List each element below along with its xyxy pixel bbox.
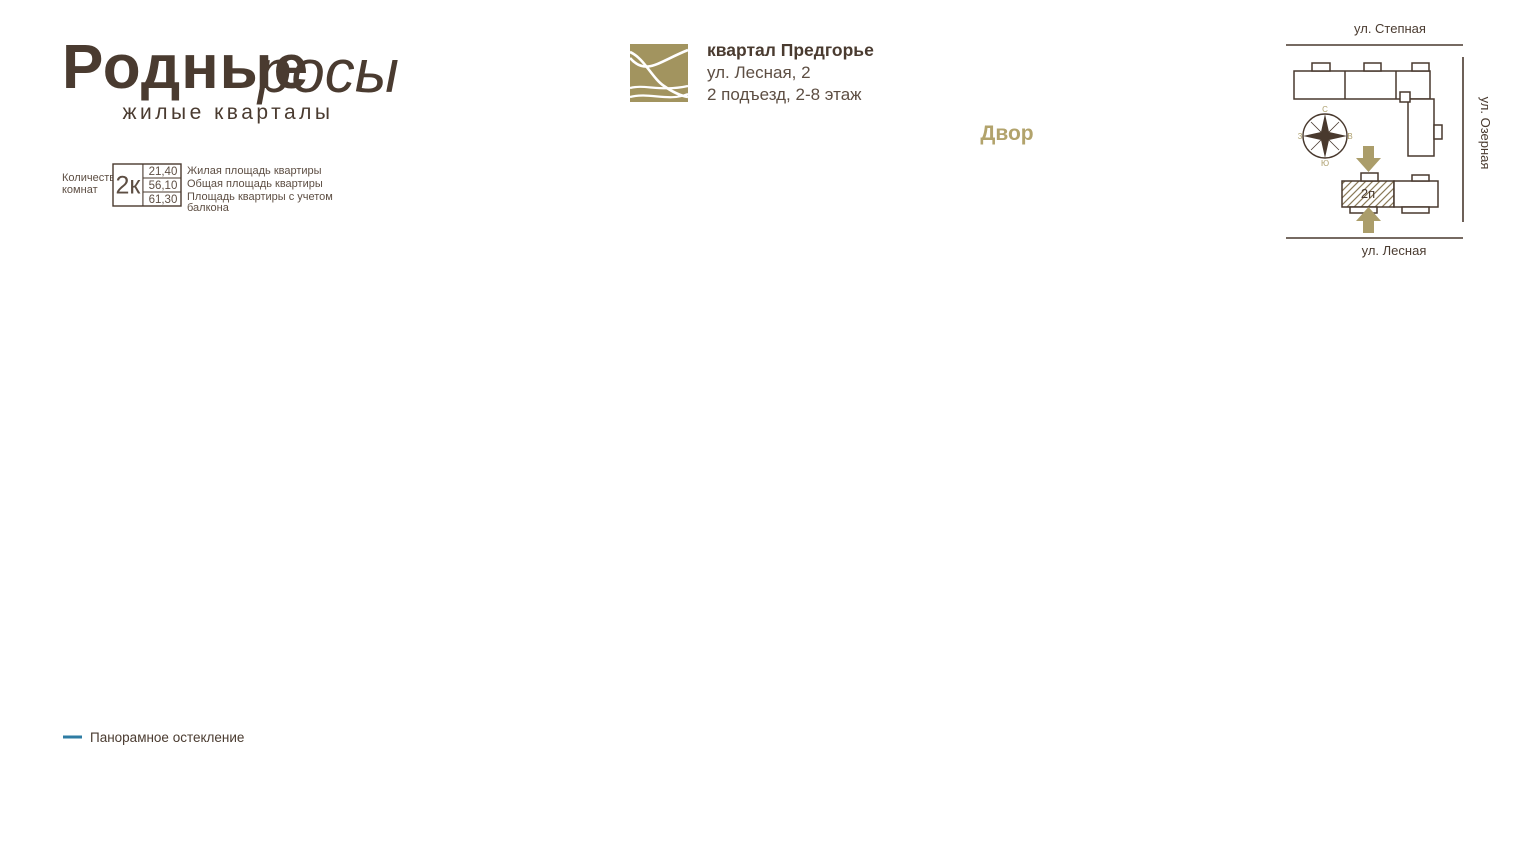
svg-text:ул. Лесная, 2: ул. Лесная, 2 bbox=[707, 63, 811, 82]
svg-text:2 подъезд, 2-8 этаж: 2 подъезд, 2-8 этаж bbox=[707, 85, 862, 104]
svg-text:Количество: Количество bbox=[62, 172, 121, 184]
svg-text:61,30: 61,30 bbox=[149, 194, 178, 206]
svg-text:комнат: комнат bbox=[62, 184, 98, 196]
svg-text:З: З bbox=[1298, 132, 1303, 141]
svg-text:2п: 2п bbox=[1361, 186, 1375, 201]
svg-text:Панорамное остекление: Панорамное остекление bbox=[90, 730, 244, 745]
svg-text:Ю: Ю bbox=[1321, 159, 1329, 168]
svg-text:Общая площадь квартиры: Общая площадь квартиры bbox=[187, 178, 323, 190]
svg-text:жилые кварталы: жилые кварталы bbox=[122, 101, 333, 124]
svg-text:21,40: 21,40 bbox=[149, 166, 178, 178]
svg-text:С: С bbox=[1322, 105, 1328, 114]
svg-text:ул. Озерная: ул. Озерная bbox=[1478, 97, 1493, 170]
svg-text:56,10: 56,10 bbox=[149, 180, 178, 192]
svg-text:В: В bbox=[1347, 132, 1352, 141]
svg-text:Двор: Двор bbox=[980, 122, 1033, 145]
svg-text:балкона: балкона bbox=[187, 202, 230, 214]
svg-text:ул. Степная: ул. Степная bbox=[1354, 21, 1426, 36]
svg-text:квартал Предгорье: квартал Предгорье bbox=[707, 40, 874, 60]
svg-text:Жилая площадь квартиры: Жилая площадь квартиры bbox=[187, 165, 322, 177]
svg-text:2к: 2к bbox=[116, 172, 142, 200]
svg-text:ул. Лесная: ул. Лесная bbox=[1362, 243, 1427, 258]
svg-text:росы: росы bbox=[256, 38, 399, 105]
